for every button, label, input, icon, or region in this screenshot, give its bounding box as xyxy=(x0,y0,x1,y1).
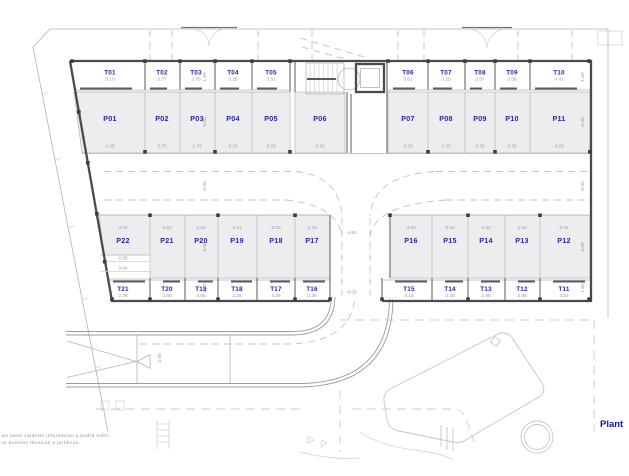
parking-stall-width: 2.62 xyxy=(162,225,172,231)
disclaimer-note-line2: or motivos técnicos o jurídicos. xyxy=(2,440,80,446)
storage-unit-width: 4.41 xyxy=(554,77,564,83)
storage-unit-label: T02 xyxy=(156,70,168,77)
parking-stall-label: P01 xyxy=(103,114,116,123)
double-door-symbol xyxy=(462,28,512,49)
double-door-symbol xyxy=(181,28,237,47)
storage-unit-width: 3.25 xyxy=(271,293,281,299)
storage-unit-label: T01 xyxy=(104,70,116,77)
storage-unit-label: T09 xyxy=(506,70,518,77)
dimension-label: 4.00 xyxy=(347,290,357,296)
dimension-label: 5.00 xyxy=(202,181,208,191)
parking-stall-label: P19 xyxy=(230,236,243,245)
storage-unit-width: 4.15 xyxy=(404,293,414,299)
floor-plan-drawing: T01 5.10 T02 2.77 T03 2.78 T04 3.25 T05 … xyxy=(0,0,629,476)
storage-unit-label: T07 xyxy=(440,70,452,77)
parking-stall-label: P22 xyxy=(116,236,129,245)
parking-stall-width: 2.83 xyxy=(481,225,491,231)
storage-unit-width: 2.65 xyxy=(162,293,172,299)
parking-stall-width: 3.23 xyxy=(232,225,242,231)
parking-stall-label: P10 xyxy=(505,114,518,123)
dimension-label: 4.62 xyxy=(347,230,357,236)
parking-stall-label: P13 xyxy=(515,236,528,245)
storage-unit-width: 3.61 xyxy=(266,77,276,83)
parking-stall-width: 2.75 xyxy=(157,144,167,150)
storage-unit-label: T08 xyxy=(474,70,486,77)
storage-unit-width: 2.85 xyxy=(517,293,527,299)
storage-unit-label: T10 xyxy=(553,70,565,77)
floor-plan-page: T01 5.10 T02 2.77 T03 2.78 T04 3.25 T05 … xyxy=(0,0,629,476)
storage-unit-width: 3.25 xyxy=(232,293,242,299)
storage-unit-label: T04 xyxy=(227,70,239,77)
parking-stall-label: P21 xyxy=(160,236,173,245)
parking-stall-label: P02 xyxy=(155,114,168,123)
dimension-label: 1.60 xyxy=(202,283,208,293)
dimension-label: 5.00 xyxy=(580,242,586,252)
storage-unit-width: 3.25 xyxy=(445,293,455,299)
storage-unit-width: 3.61 xyxy=(403,77,413,83)
storage-unit-label: T18 xyxy=(231,286,243,293)
dimension-label: 3.04 xyxy=(118,266,128,272)
storage-unit-width: 2.77 xyxy=(157,77,167,83)
parking-stall-width: 2.35 xyxy=(507,144,517,150)
parking-stall-width: 2.43 xyxy=(307,225,317,231)
storage-unit-width: 2.85 xyxy=(481,293,491,299)
storage-unit-width: 2.78 xyxy=(118,293,128,299)
ramp xyxy=(67,335,230,384)
storage-unit-label: T03 xyxy=(190,70,202,77)
parking-stall-label: P17 xyxy=(305,236,318,245)
parking-stall-label: P06 xyxy=(313,114,326,123)
parking-stall-width: 3.76 xyxy=(118,225,128,231)
storage-unit-label: T14 xyxy=(444,286,456,293)
parking-stall-label: P11 xyxy=(553,114,566,123)
parking-stall-label: P03 xyxy=(190,114,203,123)
disclaimer-note-line1: eo tiene carácter informativo y podrá su… xyxy=(2,433,109,439)
storage-unit-label: T17 xyxy=(270,286,282,293)
storage-unit-width: 2.38 xyxy=(507,77,517,83)
dimension-label: 1.60 xyxy=(580,283,586,293)
storage-top-labels: T01 5.10 T02 2.77 T03 2.78 T04 3.25 T05 … xyxy=(104,70,565,83)
parking-stall-label: P07 xyxy=(401,114,414,123)
storage-unit-label: T06 xyxy=(402,70,414,77)
storage-unit-width: 3.25 xyxy=(441,77,451,83)
storage-unit-label: T21 xyxy=(117,286,129,293)
dimension-label: 5.00 xyxy=(580,117,586,127)
parking-stall-width: 3.42 xyxy=(559,225,569,231)
parking-stall-width: 4.25 xyxy=(554,144,564,150)
elevator-icon xyxy=(356,64,384,92)
dimension-label: 2.98 xyxy=(118,256,128,262)
annotations: eo tiene carácter informativo y podrá su… xyxy=(2,419,624,446)
dimension-label: 1.60 xyxy=(580,72,586,82)
pool-outline xyxy=(384,333,553,453)
exterior-stair-icon xyxy=(157,420,169,449)
ground-context xyxy=(96,320,594,460)
parking-stall-width: 3.23 xyxy=(266,144,276,150)
parking-stall-width: 3.23 xyxy=(406,225,416,231)
storage-unit-label: T12 xyxy=(516,286,528,293)
storage-unit-label: T15 xyxy=(403,286,415,293)
storage-unit-width: 2.78 xyxy=(191,77,201,83)
storage-unit-width: 2.36 xyxy=(307,293,317,299)
parking-stall-label: P05 xyxy=(264,114,277,123)
dimension-label: 4.00 xyxy=(157,353,163,363)
storage-unit-width: 3.52 xyxy=(559,293,569,299)
parking-stall-width: 2.35 xyxy=(475,144,485,150)
ramp-arrow-icon xyxy=(137,355,150,369)
storage-unit-label: T20 xyxy=(161,286,173,293)
spa-circle-icon xyxy=(521,421,553,453)
parking-stall-width: 2.75 xyxy=(192,144,202,150)
parking-stall-width: 3.23 xyxy=(228,144,238,150)
parking-stall-label: P14 xyxy=(479,236,492,245)
parking-stall-width: 3.43 xyxy=(315,144,325,150)
storage-unit-width: 5.10 xyxy=(105,77,115,83)
parking-stall-width: 4.25 xyxy=(105,144,115,150)
storage-unit-label: T13 xyxy=(480,286,492,293)
access-road xyxy=(66,297,393,387)
parking-stall-width: 3.23 xyxy=(271,225,281,231)
storage-unit-label: T05 xyxy=(265,70,277,77)
dimension-label: 5.00 xyxy=(580,181,586,191)
parking-stall-width: 2.62 xyxy=(196,225,206,231)
stairs-icon xyxy=(306,63,360,94)
parking-stall-label: P04 xyxy=(226,114,239,123)
parking-stall-label: P16 xyxy=(404,236,417,245)
parking-stall-width: 2.83 xyxy=(517,225,527,231)
parking-stall-width: 3.23 xyxy=(445,225,455,231)
dimension-label: 1.60 xyxy=(202,72,208,82)
parking-stall-width: 3.23 xyxy=(403,144,413,150)
parking-stall-label: P18 xyxy=(269,236,282,245)
storage-unit-width: 3.25 xyxy=(228,77,238,83)
storage-unit-label: T11 xyxy=(558,286,570,293)
storage-unit-width: 2.65 xyxy=(196,293,206,299)
parking-stall-label: P08 xyxy=(439,114,452,123)
parking-stall-label: P12 xyxy=(557,236,570,245)
parking-stall-width: 3.23 xyxy=(441,144,451,150)
parking-stall-label: P15 xyxy=(443,236,456,245)
parking-stall-label: P09 xyxy=(473,114,486,123)
dimension-label: 5.00 xyxy=(202,242,208,252)
dimension-label: 5.00 xyxy=(202,117,208,127)
storage-unit-label: T16 xyxy=(306,286,318,293)
plan-title: Plant xyxy=(600,419,624,430)
storage-unit-width: 2.37 xyxy=(475,77,485,83)
